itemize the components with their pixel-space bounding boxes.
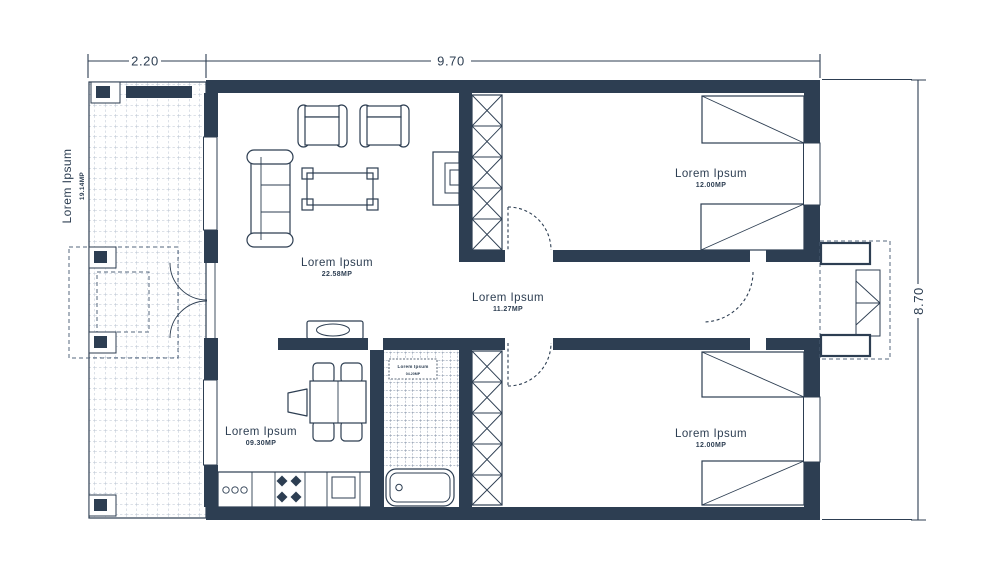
chair [313,363,334,383]
stairs [856,270,880,336]
bed [701,204,804,250]
terrace-wall-stub [126,86,192,98]
wall-bath-bedroom [459,350,472,507]
dining-set [288,363,366,441]
window [804,143,821,205]
room-label-bathroom: Lorem Ipsum [397,364,428,369]
dim-body-height: 8.70 [911,287,926,315]
room-label-bedroom-bottom: Lorem Ipsum [675,428,747,440]
room-area-bedroom-bottom: 12.00MP [696,442,726,449]
kitchen-counter [218,472,373,507]
room-area-bathroom: 04.20MP [406,372,421,376]
armchair [360,105,409,147]
window [204,380,218,465]
room-area-bedroom-top: 12.00MP [696,182,726,189]
chair [341,363,362,383]
dim-body-width: 9.70 [437,54,465,69]
bed [702,96,804,143]
entry-door-swing [703,272,753,322]
kitchen-sink [307,321,363,339]
terrace-area: 19.14MP [79,172,86,200]
bed [702,461,804,505]
room-area-living: 22.58MP [322,271,352,278]
entry-porch [820,241,890,359]
room-label-kitchen: Lorem Ipsum [225,426,297,438]
room-label-hallway: Lorem Ipsum [472,292,544,304]
wardrobe [472,351,502,505]
bed [702,352,804,397]
wall-bathroom-left [370,350,384,507]
floor-plan-canvas: 2.20 9.70 8.70 Lorem Ipsum 19.14MP Lorem… [0,0,1000,574]
planter [821,243,870,264]
dim-terrace-width: 2.20 [131,54,159,69]
pillar [89,247,116,268]
room-area-kitchen: 09.30MP [246,440,276,447]
pillar [89,332,116,353]
oven [332,477,355,498]
door-swing [508,207,551,250]
room-area-hallway: 11.27MP [493,306,523,313]
room-label-bedroom-top: Lorem Ipsum [675,168,747,180]
tv-unit [433,152,459,205]
wall-bathroom-top [383,338,472,350]
chair [313,421,334,441]
planter [821,335,870,356]
terrace-floor [89,82,206,518]
coffee-table [302,168,378,210]
door-swing [508,343,551,386]
room-label-living: Lorem Ipsum [301,257,373,269]
bathtub [386,469,454,506]
window [204,137,218,230]
wall-living-bedroom [459,93,472,250]
terrace [69,82,206,518]
wall-kitchen [278,338,368,350]
floor-plan-drawing: 2.20 9.70 8.70 Lorem Ipsum 19.14MP Lorem… [0,0,1000,574]
wall-top [206,80,820,93]
wardrobe [472,95,502,250]
armchair [298,105,347,147]
chair [341,421,362,441]
bathroom-label-box [389,359,437,379]
terrace-label: Lorem Ipsum [60,149,74,224]
pillar [91,82,120,103]
sofa [247,150,293,247]
pillar [89,495,116,516]
window [804,397,821,462]
drain-icon [396,484,402,490]
wall-bottom [206,507,820,520]
chair [288,389,307,416]
